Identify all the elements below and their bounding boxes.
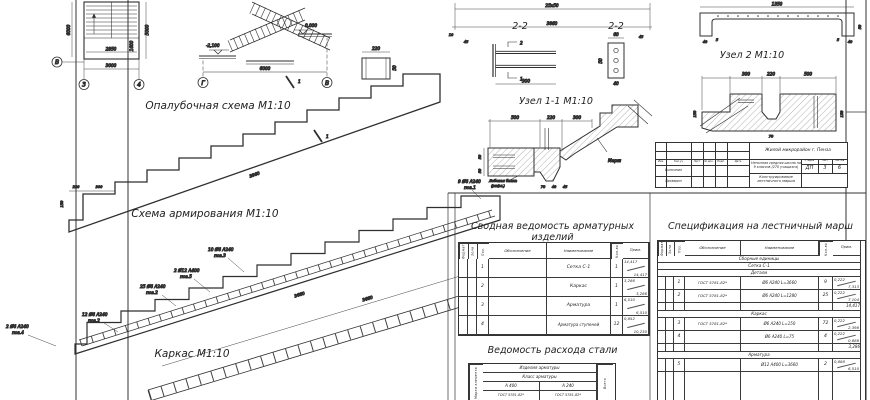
spec-table: Формат Зона Поз. Обозначение Наименовани… xyxy=(657,240,866,400)
spec-section: Арматура xyxy=(658,352,861,359)
cell xyxy=(666,303,674,311)
topdim-3: 45 xyxy=(464,40,469,44)
cell: 2 xyxy=(819,359,833,372)
s22b-dim-bottom: 40 xyxy=(613,81,619,86)
cell: 1 xyxy=(611,259,623,278)
cell: Ø12 А400 L=3660 xyxy=(741,359,819,372)
detail-dim-w: 220 xyxy=(372,46,380,51)
cell: 4 xyxy=(674,331,685,344)
cell: 0,8886,510 xyxy=(833,359,861,372)
elev-level-zero: 0,000 xyxy=(305,23,317,28)
cell xyxy=(468,259,477,278)
beam-dim-d: 40 xyxy=(848,40,853,44)
reinf-ann-5: 12 Ø6 А240 xyxy=(82,311,108,318)
summary-table-title: Сводная ведомость арматурных изделий xyxy=(455,221,650,243)
cell xyxy=(468,297,477,316)
section-22a-title: 2-2 xyxy=(512,21,528,32)
reinforcement-scheme: 9 Ø6 А240 поз.1 10 Ø6 А240 поз.3 2 Ø12 А… xyxy=(6,178,500,354)
cell: 25 xyxy=(819,290,833,303)
cell xyxy=(459,259,468,278)
spec-section: Сетка С-1 xyxy=(658,263,861,270)
node2-title: Узел 2 М1:10 xyxy=(720,50,784,61)
cell xyxy=(685,344,741,352)
cell xyxy=(674,344,685,352)
steel-gost-2: ГОСТ 5781-82* xyxy=(540,391,597,400)
cell: 1 xyxy=(611,297,623,316)
tb-col-podp: Подп. xyxy=(715,159,727,165)
tb-stage-value: ДП xyxy=(801,164,818,173)
topdim-1: 25х50 xyxy=(545,3,558,8)
node2-dim-v1: 150 xyxy=(693,110,697,118)
reinf-ann-5p: поз.2 xyxy=(88,318,100,324)
reinf-ann-4: 25 Ø6 А240 xyxy=(140,283,166,290)
plate-detail: 220 50 xyxy=(362,46,397,79)
spec-section: Сборные единицы xyxy=(658,256,861,263)
elev-level-minus: -2,100 xyxy=(206,43,220,48)
node2-dim-220: 220 xyxy=(767,72,775,77)
col-header: Обозначение xyxy=(685,241,741,256)
plan-dim-left: 6000 xyxy=(66,24,71,35)
topdim-2: 3860 xyxy=(547,21,558,26)
formwork-dim-220: 220 xyxy=(73,185,81,189)
beam-dim-a: 40 xyxy=(703,40,708,44)
steel-total-header: Всего xyxy=(597,364,613,400)
tb-project: Жилой микрорайон г. Пенза xyxy=(749,143,847,159)
cell: 1 xyxy=(674,277,685,290)
cell xyxy=(819,372,833,400)
node1-dim-300: 300 xyxy=(573,115,581,120)
plan-view: 3 4 В 2950 3000 6000 5000 1600 xyxy=(52,2,150,90)
frame-slope-dim: 3660 xyxy=(362,295,374,303)
tb-doc-name: Конструирование лестничного марша xyxy=(749,173,803,187)
node1-beam-note-1: Лобовая балка xyxy=(488,179,517,183)
cell xyxy=(489,316,547,335)
s22a-dim: 300 xyxy=(522,79,530,84)
reinf-ann-3p: поз.5 xyxy=(180,274,192,280)
cell xyxy=(489,297,547,316)
cell xyxy=(819,303,833,311)
cell: ГОСТ 5781-82* xyxy=(685,290,741,303)
col-header: Наименование xyxy=(741,241,819,256)
cell: 3 xyxy=(477,297,489,316)
spec-subtotal: 14,417 xyxy=(833,303,861,311)
cell: Ø6 А240 L=150 xyxy=(741,318,819,331)
formwork-dim-150: 150 xyxy=(60,200,64,208)
axis-v-label: В xyxy=(55,59,59,66)
node2-dim-500: 500 xyxy=(804,72,812,77)
col-header: Кол-во xyxy=(819,241,833,256)
col-header: Зона xyxy=(468,243,477,259)
cell: 0,85210,230 xyxy=(623,316,649,335)
node1-dim-b2: 40 xyxy=(552,185,557,189)
col-header: Обозначение xyxy=(489,243,547,259)
cell xyxy=(489,278,547,297)
cut-mark-1b: 1 xyxy=(326,134,329,139)
steel-h2: Класс арматуры xyxy=(483,373,597,382)
s22a-mark2: 2 xyxy=(520,41,523,46)
summary-table: Формат Зона Поз. Обозначение Наименовани… xyxy=(458,242,650,336)
formwork-title: Опалубочная схема М1:10 xyxy=(145,100,291,112)
cell xyxy=(666,344,674,352)
plan-dim-width: 3000 xyxy=(106,63,117,68)
cell xyxy=(658,359,666,372)
s22b-dim-left: 50 xyxy=(598,58,603,64)
beam-dim-w: 1350 xyxy=(772,2,783,7)
cell xyxy=(658,290,666,303)
cell: Каркас xyxy=(547,278,611,297)
cell xyxy=(819,344,833,352)
steel-class-1: А 400 xyxy=(483,382,540,391)
cell: 0,2222,398 xyxy=(833,318,861,331)
tb-col-data: Дата xyxy=(727,159,749,165)
spec-table-title: Спецификация на лестничный марш xyxy=(655,221,866,232)
tb-col-dok: № док. xyxy=(703,159,715,165)
col-header: Формат xyxy=(658,241,666,256)
formwork-slope-dim: 3960 xyxy=(249,170,261,178)
reinf-slope-dim: 3660 xyxy=(294,290,306,298)
frame-title: Каркас М1:10 xyxy=(154,348,229,360)
steel-gost-1: ГОСТ 5781-82* xyxy=(483,391,540,400)
node1-flight-note: Марш xyxy=(608,158,621,164)
cell xyxy=(833,372,861,400)
section-22b-title: 2-2 xyxy=(608,21,624,32)
beam-dim-h: 50 xyxy=(858,24,862,29)
elev-dim-width: 6000 xyxy=(260,66,271,71)
cell: Сетка С-1 xyxy=(547,259,611,278)
section-22-left: 2 1 300 xyxy=(493,41,556,85)
axis-3-label: 3 xyxy=(82,82,86,89)
topdim-5: 10 xyxy=(449,33,454,37)
cell: Ø6 А240 L=3660 xyxy=(741,277,819,290)
cell xyxy=(741,372,819,400)
cell: Арматура xyxy=(547,297,611,316)
node-2-detail: 300 220 500 150 150 70 xyxy=(693,72,844,139)
reinf-ann-6p: поз.4 xyxy=(12,330,24,336)
reinforcement-title: Схема армирования М1:10 xyxy=(131,208,279,220)
cell: 1 xyxy=(611,278,623,297)
cell: 9 xyxy=(819,277,833,290)
node1-beam-note-2: (рифл.) xyxy=(491,184,506,188)
cut-mark-1a: 1 xyxy=(298,79,301,84)
cell: 12 xyxy=(611,316,623,335)
cell: 0,2227,104 xyxy=(833,290,861,303)
reinf-ann-2p: поз.3 xyxy=(214,253,226,259)
reinf-ann-1: 9 Ø6 А240 xyxy=(458,178,481,185)
spec-subtotal: 3,286 xyxy=(833,344,861,352)
topdim-4: 45 xyxy=(639,35,644,39)
node1-title: Узел 1-1 М1:10 xyxy=(519,96,593,107)
node1-dim-500: 500 xyxy=(511,115,519,120)
cell: 1 xyxy=(477,259,489,278)
node1-dim-b1: 70 xyxy=(541,185,546,189)
cell xyxy=(674,303,685,311)
tb-row-author: Выполнил xyxy=(656,165,691,176)
cell xyxy=(666,318,674,331)
cell xyxy=(459,316,468,335)
cell xyxy=(489,259,547,278)
section-22-right: 60 50 40 xyxy=(598,32,624,86)
spec-section: Детали xyxy=(658,270,861,277)
cell xyxy=(658,303,666,311)
cell: 2 xyxy=(477,278,489,297)
cell xyxy=(658,344,666,352)
cell xyxy=(685,331,741,344)
formwork-dim-300: 300 xyxy=(96,185,104,189)
cell: ГОСТ 5781-82* xyxy=(685,318,741,331)
cell: 3 xyxy=(674,318,685,331)
node1-dim-b3: 45 xyxy=(563,185,568,189)
spec-section: Каркас xyxy=(658,311,861,318)
axis-4-label: 4 xyxy=(137,82,141,89)
cell: Ø6 А240 L=75 xyxy=(741,331,819,344)
col-header: Кол-во xyxy=(611,243,623,259)
cell xyxy=(741,344,819,352)
cell xyxy=(666,372,674,400)
col-header: Прим. xyxy=(833,241,861,256)
plan-dim-inner: 2950 xyxy=(106,47,117,52)
cell: Ø6 А240 L=1280 xyxy=(741,290,819,303)
reinf-ann-6: 2 Ø6 А240 xyxy=(6,323,29,330)
cell: 6,5106,510 xyxy=(623,297,649,316)
col-header: Поз. xyxy=(477,243,489,259)
node1-dim-v2: 50 xyxy=(478,168,482,173)
cell: ГОСТ 5781-82* xyxy=(685,277,741,290)
tb-sheets-value: 6 xyxy=(832,164,847,173)
cell xyxy=(674,372,685,400)
cell: 0,2227,313 xyxy=(833,277,861,290)
reinf-ann-4p: поз.2 xyxy=(146,290,158,296)
tb-row-checker: Проверил xyxy=(656,176,691,187)
steel-class-2: А 240 xyxy=(540,382,597,391)
cell xyxy=(666,290,674,303)
steel-table: Марка элемента Изделия арматуры Всего Кл… xyxy=(468,363,616,400)
cell: 5 xyxy=(674,359,685,372)
beam-dim-c: 5 xyxy=(837,38,840,42)
steel-h1: Изделия арматуры xyxy=(483,364,597,373)
col-header: Поз. xyxy=(674,241,685,256)
cell xyxy=(459,297,468,316)
cell: 4 xyxy=(477,316,489,335)
cell xyxy=(658,277,666,290)
col-header: Прим. xyxy=(623,243,649,259)
cell xyxy=(468,278,477,297)
node2-dim-300: 300 xyxy=(742,72,750,77)
cell xyxy=(658,372,666,400)
detail-dim-h: 50 xyxy=(392,65,397,71)
reinf-ann-2: 10 Ø6 А240 xyxy=(208,246,234,253)
cell: 2 xyxy=(674,290,685,303)
plan-dim-v-inner: 1600 xyxy=(129,40,134,51)
axis-g-label: Г xyxy=(201,80,205,87)
cell xyxy=(741,303,819,311)
beam-section: 1350 40 5 5 40 50 xyxy=(700,2,862,45)
cell: 3,2863,286 xyxy=(623,278,649,297)
cell: 0,2220,888 xyxy=(833,331,861,344)
title-block: Изм. Кол.уч Лист № док. Подп. Дата Выпол… xyxy=(655,142,848,188)
col-header: Формат xyxy=(459,243,468,259)
tb-sheet-value: 3 xyxy=(818,164,832,173)
drawing-sheet: 3 4 В 2950 3000 6000 5000 1600 Г В 6000 … xyxy=(0,0,870,400)
cell: 4 xyxy=(819,331,833,344)
s22b-dim-top: 60 xyxy=(613,32,619,37)
node-1-detail: 500 220 300 50 50 70 40 45 Марш Лобовая … xyxy=(478,100,652,189)
cell xyxy=(666,277,674,290)
cell xyxy=(459,278,468,297)
col-header: Зона xyxy=(666,241,674,256)
reinf-ann-3: 2 Ø12 А400 xyxy=(174,267,200,274)
cell xyxy=(658,318,666,331)
node1-dim-220: 220 xyxy=(547,115,555,120)
node1-dim-v1: 50 xyxy=(478,154,482,159)
reinf-ann-1p: поз.1 xyxy=(464,185,476,191)
axis-v2-label: В xyxy=(325,80,329,87)
tb-col-list: Лист xyxy=(691,159,703,165)
steel-table-title: Ведомость расхода стали xyxy=(455,345,650,356)
node2-dim-v2: 150 xyxy=(840,110,844,118)
cell xyxy=(666,359,674,372)
cell xyxy=(685,372,741,400)
node2-dim-b1: 70 xyxy=(769,135,774,139)
cell xyxy=(658,331,666,344)
cell xyxy=(468,316,477,335)
cell: Арматура ступеней xyxy=(547,316,611,335)
plan-dim-right: 5000 xyxy=(145,24,150,35)
col-header: Наименование xyxy=(547,243,611,259)
cell xyxy=(685,359,741,372)
cell xyxy=(685,303,741,311)
beam-dim-b: 5 xyxy=(716,38,719,42)
cell: 72 xyxy=(819,318,833,331)
cell: 14,41714,417 xyxy=(623,259,649,278)
steel-element-header: Марка элемента xyxy=(469,364,483,400)
elevation-view: Г В 6000 0,000 -2,100 xyxy=(198,2,332,88)
tb-object: Неполная средняя школа на 9 классов (270… xyxy=(749,159,803,173)
cell xyxy=(666,331,674,344)
